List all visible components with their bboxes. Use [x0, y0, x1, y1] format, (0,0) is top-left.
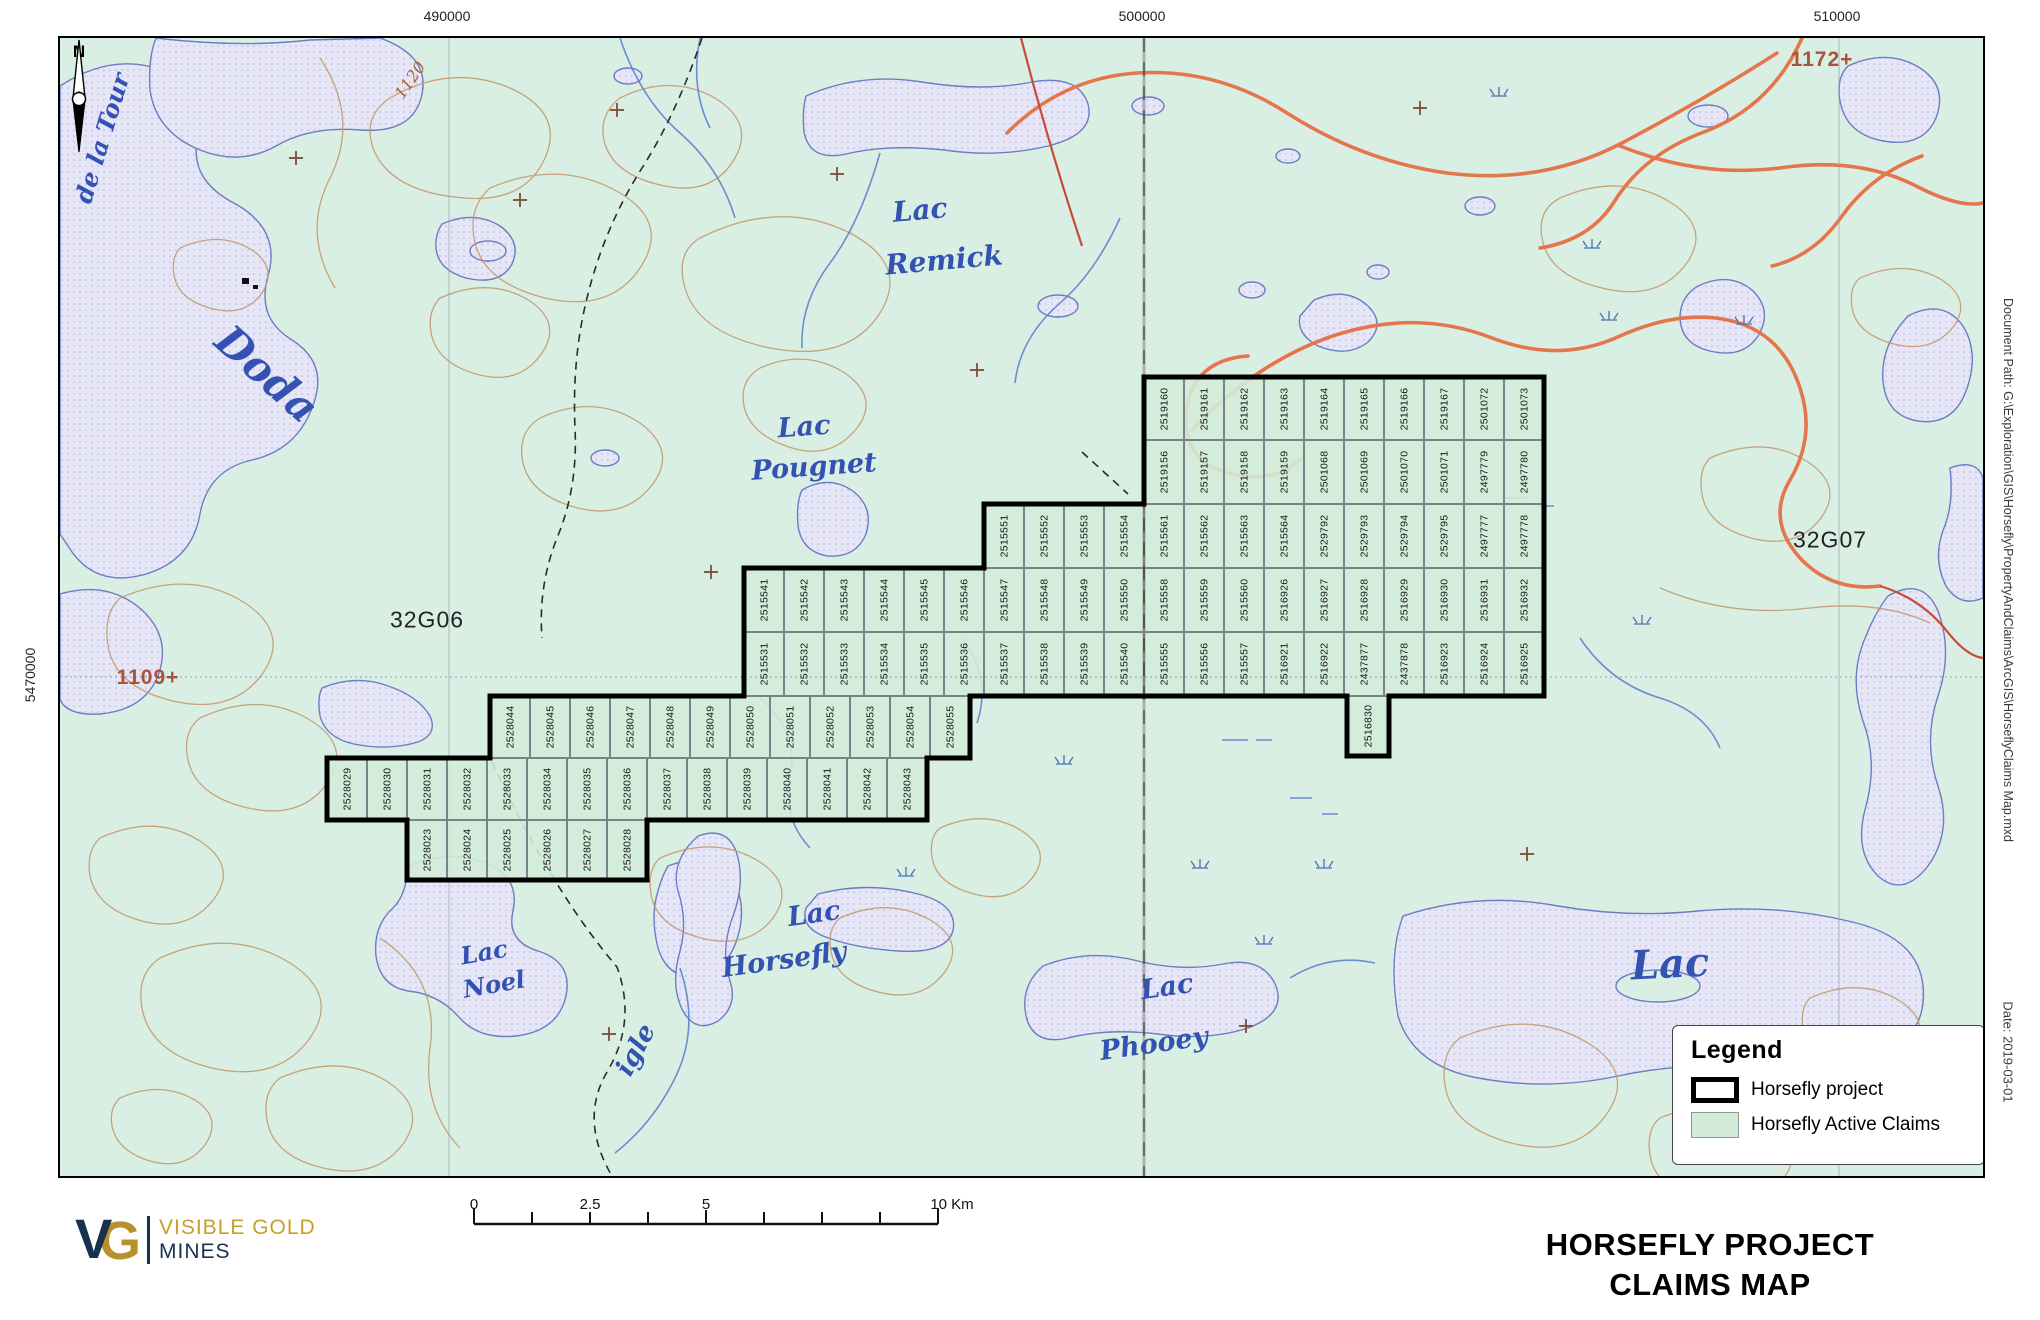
map-label: Lac: [1139, 968, 1196, 1006]
logo-name-line1: VISIBLE GOLD: [159, 1216, 316, 1240]
logo-v-mark: V: [75, 1206, 112, 1271]
scale-label-5: 5: [702, 1196, 710, 1213]
map-label: Horsefly: [720, 936, 849, 984]
active-claims-swatch: [1691, 1112, 1739, 1138]
map-label: Lac: [786, 895, 843, 933]
logo-divider: [147, 1216, 150, 1264]
map-label: Pougnet: [750, 447, 877, 487]
map-label: Phooey: [1098, 1021, 1210, 1067]
legend-item-project: Horsefly project: [1691, 1077, 1984, 1103]
map-label: Doda: [206, 315, 329, 432]
map-label: 1172+: [1791, 48, 1854, 72]
map-label: Lac: [1630, 938, 1711, 989]
map-label: 32G06: [390, 607, 464, 634]
company-logo: G V VISIBLE GOLD MINES: [75, 1206, 495, 1276]
map-label: Noel: [461, 964, 527, 1003]
map-label: Lac: [777, 410, 832, 445]
coord-label-5470000: 5470000: [22, 648, 38, 703]
map-frame: 2519160251916125191622519163251916425191…: [58, 36, 1985, 1178]
map-title-line2: CLAIMS MAP: [1505, 1265, 1915, 1305]
map-label: Remick: [884, 238, 1004, 281]
date-note: Date: 2019-03-01: [2001, 1001, 2016, 1102]
map-label: 1109+: [117, 666, 180, 690]
scale-bar: [460, 1192, 980, 1238]
map-label: igle: [610, 1019, 662, 1081]
map-label: Lac: [891, 191, 949, 229]
map-label: 32G07: [1793, 527, 1867, 554]
claims-map-page: { "header_coords": {"top": ["490000", "5…: [0, 0, 2040, 1320]
project-outline-swatch: [1691, 1077, 1739, 1103]
document-path-note: Document Path: G:\Exploration\GIS\Horsef…: [2001, 298, 2015, 842]
map-label: 1120: [391, 58, 430, 102]
legend-box: Legend Horsefly project Horsefly Active …: [1672, 1025, 1985, 1165]
scale-label-10: 10 Km: [930, 1196, 973, 1213]
legend-item-label: Horsefly project: [1751, 1079, 1883, 1101]
map-label: Lac: [458, 934, 509, 971]
legend-title: Legend: [1691, 1036, 1984, 1065]
logo-name-line2: MINES: [159, 1240, 231, 1264]
scale-label-25: 2.5: [580, 1196, 601, 1213]
coord-label-500000: 500000: [1119, 8, 1166, 24]
coord-label-510000: 510000: [1814, 8, 1861, 24]
coord-label-490000: 490000: [424, 8, 471, 24]
legend-item-label: Horsefly Active Claims: [1751, 1114, 1940, 1136]
labels-layer: N Legend Horsefly project Horsefly Activ…: [60, 38, 1983, 1176]
map-title: HORSEFLY PROJECT CLAIMS MAP: [1505, 1225, 1915, 1305]
map-title-line1: HORSEFLY PROJECT: [1505, 1225, 1915, 1265]
legend-item-claims: Horsefly Active Claims: [1691, 1112, 1984, 1138]
